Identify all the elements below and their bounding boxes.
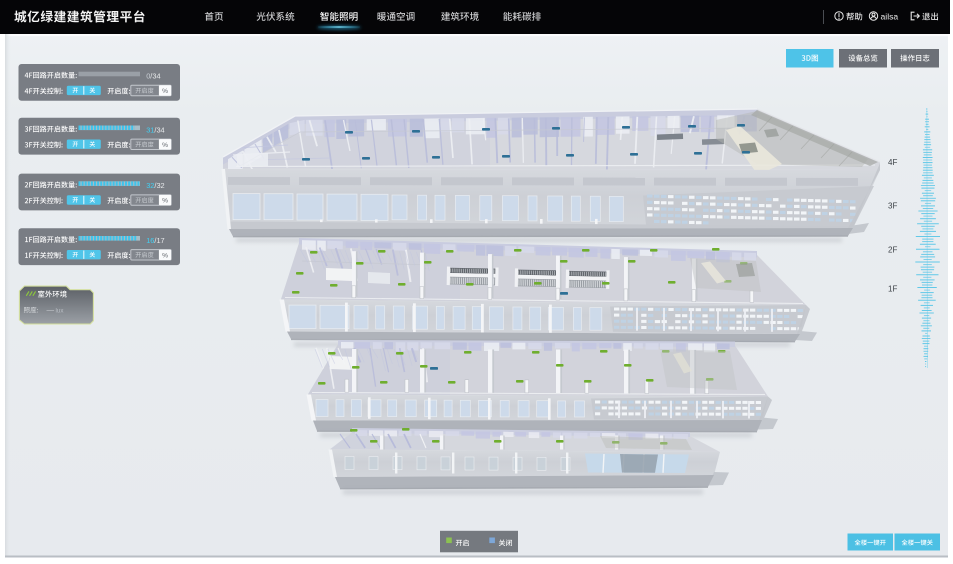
svg-text:%: %: [162, 252, 168, 259]
svg-text:—: —: [47, 305, 55, 314]
svg-text:32: 32: [146, 181, 154, 190]
svg-text:%: %: [162, 88, 168, 95]
svg-text:2F: 2F: [888, 246, 897, 255]
svg-text:4F: 4F: [888, 158, 897, 167]
svg-text:/34: /34: [150, 72, 160, 81]
svg-text:lux: lux: [56, 307, 65, 314]
svg-text:%: %: [162, 198, 168, 205]
svg-text:16: 16: [146, 236, 154, 245]
svg-text:31: 31: [146, 125, 154, 134]
svg-text:/17: /17: [154, 236, 164, 245]
svg-text:/32: /32: [154, 181, 164, 190]
svg-text:%: %: [162, 142, 168, 149]
svg-text:ailsa: ailsa: [881, 11, 899, 21]
svg-text:/34: /34: [154, 125, 164, 134]
svg-text:3F: 3F: [888, 202, 897, 211]
svg-text:1F: 1F: [888, 285, 897, 294]
